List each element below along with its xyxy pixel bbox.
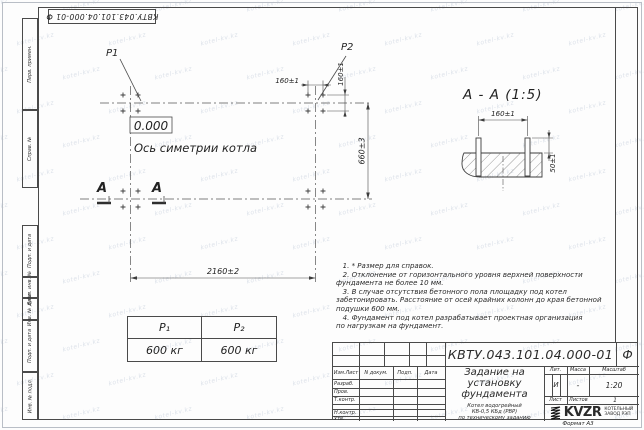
section-dim-50-label: 50±1 (549, 153, 557, 172)
section-dim-160-label: 160±1 (491, 110, 515, 118)
drawing-title: Задание на установку фундамента (445, 367, 544, 402)
org-cell: KVZR КОТЕЛЬНЫЙ ЗАВОД РЭП (544, 404, 639, 421)
row-razrab: Разраб. (334, 379, 359, 388)
dim-660 (366, 103, 370, 199)
lit-value: И (552, 374, 560, 396)
drawing-sheet: kotel-kv.kzkotel-kv.kzkotel-kv.kzkotel-k… (0, 0, 644, 430)
drawing-subtitle: Котел водогрейный КВ-0,5 КБд (РВР) по те… (445, 402, 544, 421)
masshtab-label: Масштаб (589, 366, 639, 374)
massa-label: Масса (567, 366, 589, 374)
section-letter-right: А (151, 181, 162, 196)
section-dim-160 (479, 116, 528, 136)
anchor-bolt-right (525, 138, 530, 176)
load-table: P₁ P₂ 600 кг 600 кг (127, 316, 277, 362)
section-letter-left: А (96, 181, 107, 196)
tb-line (384, 343, 385, 366)
row-utv: Утв. (334, 416, 359, 421)
section-view-title: А - А (1:5) (462, 87, 542, 103)
masshtab-value: 1:20 (589, 374, 639, 396)
lit-label: Лит. (544, 366, 567, 374)
col-data: Дата (417, 366, 445, 379)
row-prov: Пров. (334, 388, 359, 396)
dim-660-label: 660±3 (358, 137, 367, 164)
listov-label: Листов (569, 396, 599, 404)
col-izm-list: Изм.Лист (333, 366, 359, 379)
anchor-bolt-left (476, 138, 481, 176)
level-mark: 0.000 (134, 119, 169, 133)
dim-2160 (131, 276, 316, 280)
doc-suffix: Ф (616, 343, 639, 366)
col-podp: Подп. (393, 366, 417, 379)
format-label: Формат А3 (545, 421, 611, 427)
tb-line (560, 374, 561, 396)
dim-160v-label: 160±1 (337, 62, 345, 86)
load-table-header-p1: P₁ (128, 317, 202, 339)
load-table-header-p2: P₂ (202, 317, 276, 339)
p1-label: P1 (106, 48, 118, 59)
kvzr-logo-icon (550, 406, 561, 420)
row-tkontr: Т.контр. (334, 396, 359, 404)
dim-2160-label: 2160±2 (207, 267, 239, 276)
kvzr-logo-subtext: КОТЕЛЬНЫЙ ЗАВОД РЭП (604, 408, 633, 418)
centerlines (80, 86, 372, 282)
section-cut-marks: А А (96, 181, 166, 203)
title-block: КВТУ.043.101.04.000-01 Ф Изм.Лист N доку… (332, 342, 638, 420)
tb-line (333, 355, 445, 356)
kvzr-logo-text: KVZR (564, 405, 602, 420)
doc-number: КВТУ.043.101.04.000-01 (445, 343, 616, 366)
tb-line (409, 343, 410, 366)
axis-label: Ось симетрии котла (134, 141, 257, 155)
tb-line (426, 343, 427, 366)
dim-160h-label: 160±1 (275, 77, 299, 85)
notes-block: 1. * Размер для справок. 2. Отклонение о… (336, 262, 616, 331)
load-table-value-p2: 600 кг (202, 339, 276, 361)
listov-value: 1 (605, 396, 625, 404)
massa-value: - (567, 374, 589, 396)
col-n-dokum: N докум. (359, 366, 393, 379)
p2-label: P2 (341, 42, 353, 53)
tb-line (359, 343, 360, 421)
load-table-value-p1: 600 кг (128, 339, 202, 361)
list-label: Лист (544, 396, 567, 404)
